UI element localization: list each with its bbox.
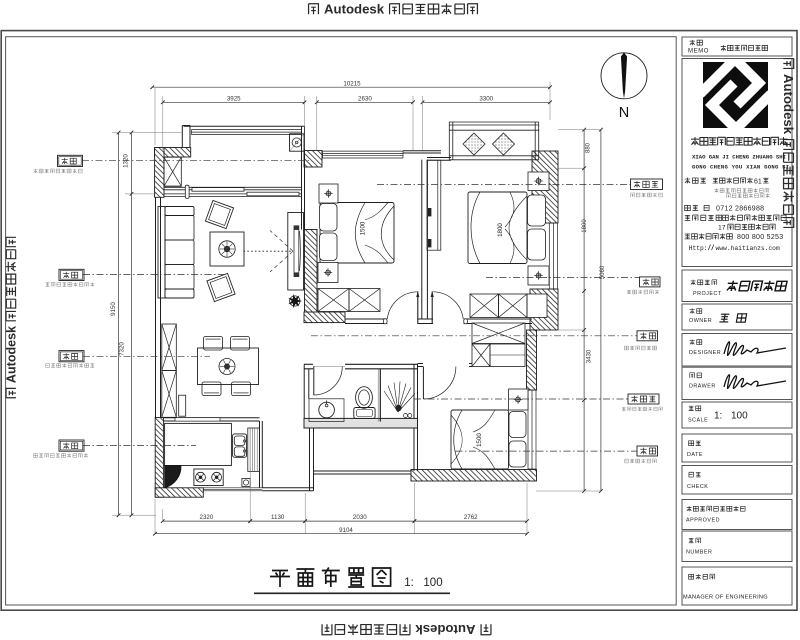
svg-text:DESIGNER: DESIGNER [689, 350, 721, 356]
svg-text:www.haitianzs.com: www.haitianzs.com [716, 245, 780, 252]
svg-text:MANAGER OF ENGINEERING: MANAGER OF ENGINEERING [683, 595, 768, 601]
svg-text:5060: 5060 [600, 265, 606, 279]
svg-text:1:: 1: [404, 577, 414, 589]
svg-text:100: 100 [731, 411, 748, 422]
svg-text:PROJECT: PROJECT [693, 291, 722, 297]
svg-text:N: N [619, 105, 629, 121]
svg-text:9150: 9150 [110, 302, 117, 316]
svg-text:3300: 3300 [479, 95, 493, 102]
svg-text:2630: 2630 [358, 95, 372, 102]
svg-text:NUMBER: NUMBER [686, 550, 712, 556]
svg-text:3430: 3430 [587, 349, 593, 363]
svg-text:880: 880 [586, 142, 592, 153]
svg-text:Http:: Http: [689, 245, 708, 252]
svg-text:GONG CHENG YOU XIAN GONG SI: GONG CHENG YOU XIAN GONG SI [692, 164, 789, 171]
svg-text:61: 61 [754, 178, 762, 185]
svg-text:800 800 5253: 800 800 5253 [737, 234, 783, 241]
svg-text:0712 2866988: 0712 2866988 [716, 206, 764, 213]
svg-text:Autodesk: Autodesk [324, 2, 385, 17]
svg-text:1:: 1: [714, 411, 722, 422]
svg-text:2762: 2762 [464, 514, 478, 521]
svg-text:1130: 1130 [271, 514, 285, 521]
svg-text:APPROVED: APPROVED [686, 518, 720, 524]
svg-text:9104: 9104 [339, 527, 353, 534]
svg-text:Autodesk: Autodesk [4, 326, 18, 383]
svg-text:OWNER: OWNER [689, 318, 712, 324]
svg-text:10215: 10215 [343, 80, 361, 87]
svg-text:1800: 1800 [497, 223, 504, 237]
svg-text:MEMO: MEMO [688, 49, 709, 55]
svg-text:DRAWER: DRAWER [689, 384, 716, 390]
svg-text:CHECK: CHECK [687, 484, 708, 490]
svg-text:1800: 1800 [582, 219, 588, 233]
svg-text:2030: 2030 [353, 514, 367, 521]
svg-text:7320: 7320 [119, 342, 126, 356]
svg-text:XIAO GAN JI CHENG ZHUANG SHI: XIAO GAN JI CHENG ZHUANG SHI [692, 153, 786, 160]
svg-text:3925: 3925 [227, 95, 241, 102]
svg-text:2320: 2320 [200, 514, 214, 521]
svg-text:Autodesk: Autodesk [781, 74, 796, 135]
svg-text:1500: 1500 [476, 433, 483, 447]
svg-text:1500: 1500 [360, 221, 367, 235]
svg-text:SCALE: SCALE [688, 418, 708, 424]
svg-text:17: 17 [718, 224, 726, 231]
svg-text:100: 100 [423, 577, 442, 589]
svg-text:DATE: DATE [687, 452, 703, 458]
svg-text:Autodesk: Autodesk [415, 622, 476, 637]
